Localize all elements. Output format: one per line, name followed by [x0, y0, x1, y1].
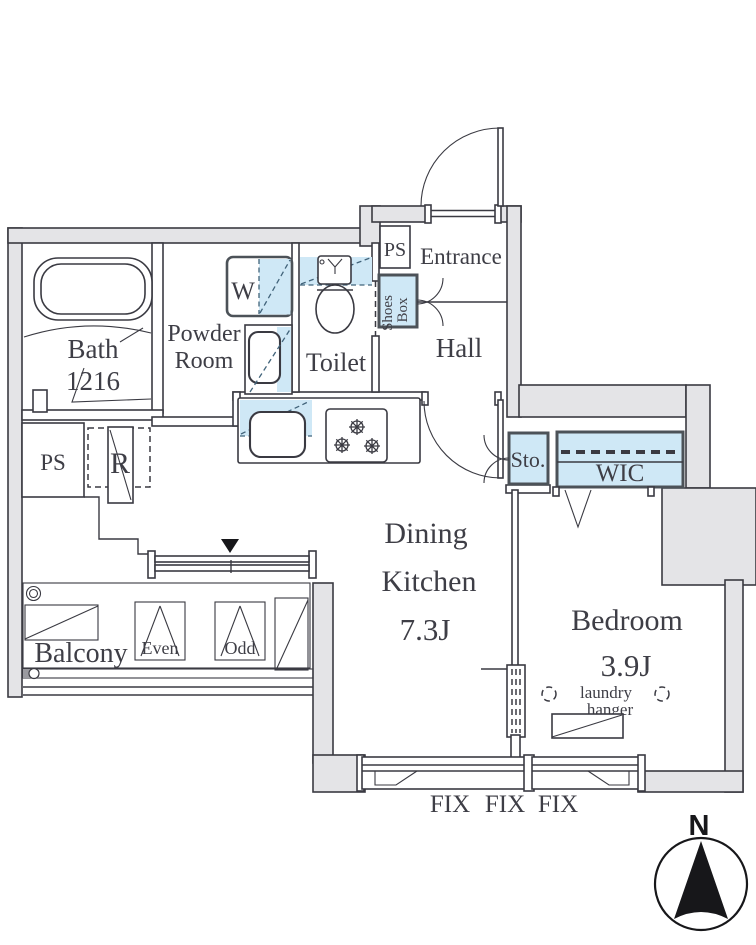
powder-room-label: Powder	[167, 321, 240, 347]
bedroom-label: Bedroom	[571, 604, 683, 637]
wall-left	[8, 228, 22, 697]
wic-door-post	[553, 487, 559, 496]
balcony-label: Balcony	[34, 638, 127, 669]
fix-label-1: FIX	[430, 791, 470, 818]
dk-door-post	[422, 392, 428, 405]
balcony-end-panel-diagonal	[277, 600, 308, 668]
bath-leader-line	[120, 328, 143, 342]
shoes-box-label2: Box	[395, 297, 411, 323]
fix-window-left	[362, 757, 528, 789]
stove	[326, 409, 387, 462]
wall-powder-bottom	[152, 417, 240, 426]
railing-post	[29, 669, 39, 679]
ac-unit-diagonal	[25, 606, 98, 639]
balcony-end-panel	[275, 598, 308, 670]
wall-bottom-right	[638, 771, 743, 792]
dining-kitchen-label1: Dining	[384, 517, 467, 550]
balcony-area: Balcony Even Odd	[23, 583, 313, 695]
dk-door-swing-arc	[424, 401, 501, 478]
storage-door-arc	[484, 435, 509, 460]
wall-entrance-top-left	[372, 206, 428, 222]
fix-label-2: FIX	[485, 791, 525, 818]
window-marker-triangle	[221, 539, 239, 553]
laundry-hook	[655, 687, 669, 701]
dk-balcony-window	[148, 539, 316, 578]
window-sliding-rail	[155, 556, 309, 562]
north-label: N	[689, 810, 710, 842]
washer-label: W	[231, 278, 255, 305]
bath-door-step	[33, 390, 47, 412]
shoes-box-label1: Shoes	[380, 295, 396, 331]
bath-label: Bath	[68, 334, 119, 364]
wall-top	[8, 228, 372, 243]
wic-door-post	[648, 487, 654, 496]
fix-windows: FIX FIX FIX	[357, 755, 645, 818]
powder-room-label2: Room	[175, 348, 234, 374]
entrance-door-swing-arc	[421, 128, 500, 206]
floorplan-canvas: Bath 1216 Powder Room W Toilet	[0, 0, 756, 945]
refrigerator-label: R	[110, 447, 130, 480]
pipe-space-entrance-label: PS	[384, 239, 406, 261]
toilet-room: Toilet	[300, 256, 372, 377]
toilet-label: Toilet	[306, 348, 367, 377]
storage-door-arc	[484, 458, 509, 483]
dining-kitchen-label2: Kitchen	[382, 565, 477, 598]
compass: N	[655, 810, 747, 930]
dining-kitchen-size-label: 7.3J	[400, 612, 451, 647]
dining-kitchen-room: Dining Kitchen 7.3J	[382, 517, 477, 647]
powder-room: Powder Room W	[167, 257, 292, 394]
partition-odd-label: Odd	[225, 638, 256, 658]
entrance-door-post	[425, 205, 431, 223]
window-end-cap	[148, 551, 155, 578]
entrance-label: Entrance	[420, 244, 502, 269]
utility-left: PS R	[22, 423, 150, 503]
wall-dk-lower-left	[313, 583, 333, 763]
balcony-drain-inner	[30, 590, 38, 598]
wall-toilet-right-bottom	[372, 336, 379, 392]
pipe-space-utility-label: PS	[40, 450, 66, 475]
wall-dk-bedroom	[512, 490, 518, 667]
kitchen-sink	[250, 412, 305, 457]
partition-even-label: Even	[142, 638, 179, 658]
storage-label: Sto.	[511, 447, 546, 472]
balcony-drain	[27, 587, 41, 601]
wall-over-closets	[519, 385, 686, 417]
bath-room: Bath 1216	[24, 258, 152, 412]
wall-dk-step	[84, 497, 150, 554]
entrance-door-leaf	[498, 128, 503, 206]
hall-label: Hall	[436, 333, 483, 363]
wall-wic-right	[686, 385, 710, 488]
balcony-railing-bar	[23, 669, 313, 678]
bath-size-label: 1216	[66, 366, 120, 396]
wic-folding-door-mark	[565, 490, 591, 527]
wall-bedroom-right	[725, 580, 743, 792]
dk-door-leaf	[498, 400, 503, 478]
basin-bowl	[249, 332, 280, 383]
window-end-cap	[638, 755, 645, 791]
bedroom-size-label: 3.9J	[601, 648, 652, 683]
fix-label-3: FIX	[538, 791, 578, 818]
bathtub-inner	[41, 264, 145, 314]
entrance-door-post	[495, 205, 501, 223]
window-sliding-rail	[155, 565, 309, 571]
window-end-cap	[309, 551, 316, 578]
wic-label: WIC	[596, 460, 645, 487]
kitchen	[238, 398, 420, 463]
fix-window-right	[532, 757, 640, 789]
bedroom-room: Bedroom 3.9J laundry hanger	[542, 604, 683, 738]
wall-right-bulge	[662, 488, 756, 585]
laundry-hook	[542, 687, 556, 701]
wall-bath-powder	[152, 243, 163, 413]
toilet-bowl	[316, 285, 354, 333]
